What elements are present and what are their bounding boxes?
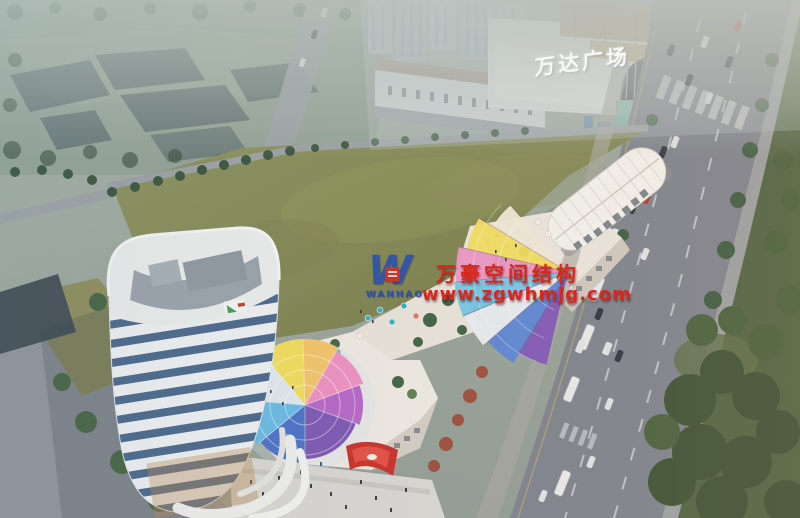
aerial-rendering-scene: 万达广场 W WANHAO 万豪空间结构 www.zgwhmjg.com [0, 0, 800, 518]
watermark-wordmark: WANHAO [360, 290, 430, 300]
watermark-company-name: 万豪空间结构 [436, 258, 580, 287]
watermark: W WANHAO 万豪空间结构 www.zgwhmjg.com [360, 250, 610, 320]
watermark-logo-badge-icon [385, 267, 400, 282]
watermark-website: www.zgwhmjg.com [422, 284, 632, 305]
